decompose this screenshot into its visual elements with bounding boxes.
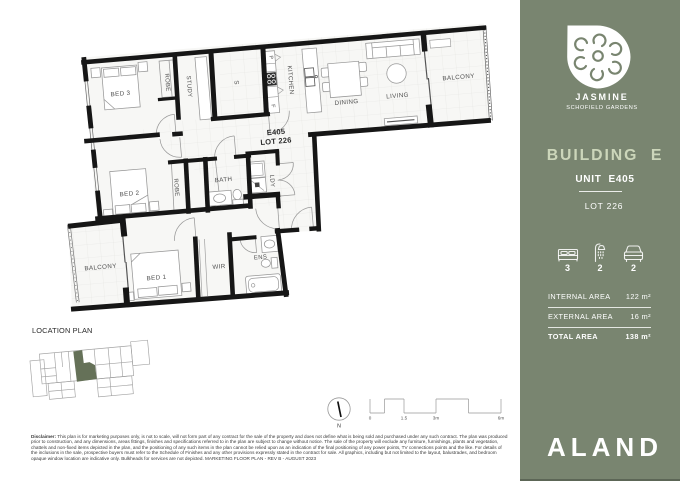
svg-text:P: P <box>267 55 273 59</box>
svg-text:ENS: ENS <box>254 254 268 261</box>
svg-text:ALAND: ALAND <box>547 433 663 461</box>
svg-text:6m: 6m <box>498 416 505 421</box>
svg-text:3m: 3m <box>433 416 440 421</box>
svg-text:WIR: WIR <box>212 263 226 271</box>
svg-text:LDY: LDY <box>268 175 275 188</box>
svg-text:BATH: BATH <box>214 176 232 184</box>
svg-text:N: N <box>337 424 341 430</box>
svg-text:0: 0 <box>369 416 372 421</box>
svg-text:S: S <box>232 80 239 85</box>
svg-text:1.5: 1.5 <box>401 416 408 421</box>
